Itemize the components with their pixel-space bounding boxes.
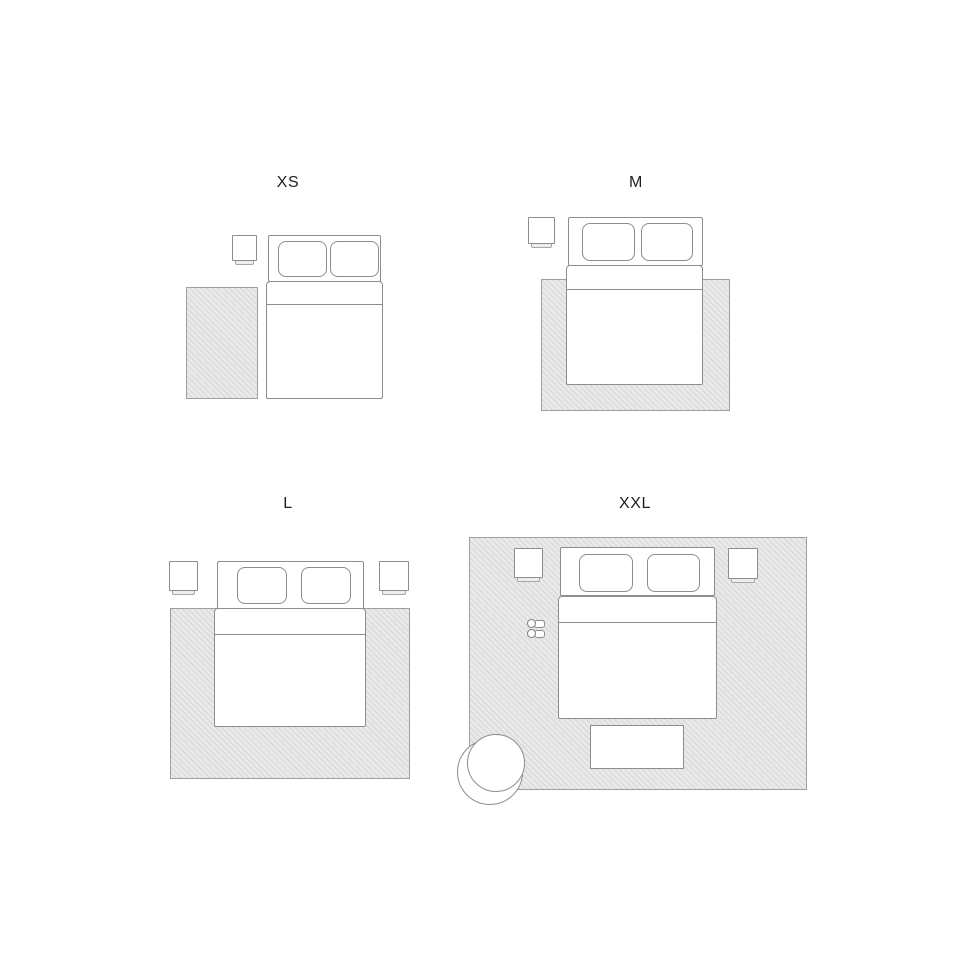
size-label-xxl: XXL bbox=[619, 495, 651, 513]
pillow-icon bbox=[278, 241, 327, 277]
nightstand-icon bbox=[232, 235, 257, 261]
rug-xs-icon bbox=[186, 287, 258, 399]
slippers-icon bbox=[527, 619, 547, 639]
pillow-icon bbox=[641, 223, 693, 261]
nightstand-left-icon bbox=[514, 548, 543, 578]
pillow-icon bbox=[330, 241, 379, 277]
nightstand-left-icon bbox=[169, 561, 198, 591]
bed-headboard-icon bbox=[217, 561, 364, 609]
bed-icon bbox=[214, 561, 366, 727]
bed-headboard-icon bbox=[568, 217, 703, 266]
bed-headboard-icon bbox=[560, 547, 715, 596]
pillow-icon bbox=[647, 554, 700, 592]
slipper-toe bbox=[527, 629, 536, 638]
bed-icon bbox=[266, 235, 383, 399]
pillow-icon bbox=[301, 567, 351, 604]
bed-headboard-icon bbox=[268, 235, 381, 282]
bed-duvet-icon bbox=[558, 596, 717, 719]
duvet-fold-line bbox=[214, 634, 366, 635]
bed-duvet-icon bbox=[566, 265, 703, 385]
rug-size-guide-diagram: XS M L bbox=[0, 0, 970, 971]
layout-xxl: XXL bbox=[0, 0, 970, 971]
duvet-fold-line bbox=[566, 289, 703, 290]
bed-icon bbox=[566, 217, 705, 385]
bed-icon bbox=[558, 547, 717, 719]
duvet-fold-line bbox=[558, 622, 717, 623]
bed-duvet-icon bbox=[214, 608, 366, 727]
slipper-icon bbox=[527, 619, 546, 628]
foot-bench-icon bbox=[590, 725, 684, 769]
armchair-seat-icon bbox=[467, 734, 525, 792]
pillow-icon bbox=[237, 567, 287, 604]
pillow-icon bbox=[582, 223, 635, 261]
duvet-fold-line bbox=[266, 304, 383, 305]
nightstand-right-icon bbox=[728, 548, 758, 579]
pillow-icon bbox=[579, 554, 633, 592]
nightstand-right-icon bbox=[379, 561, 409, 591]
bed-duvet-icon bbox=[266, 281, 383, 399]
slipper-toe bbox=[527, 619, 536, 628]
slipper-icon bbox=[527, 629, 546, 638]
nightstand-icon bbox=[528, 217, 555, 244]
